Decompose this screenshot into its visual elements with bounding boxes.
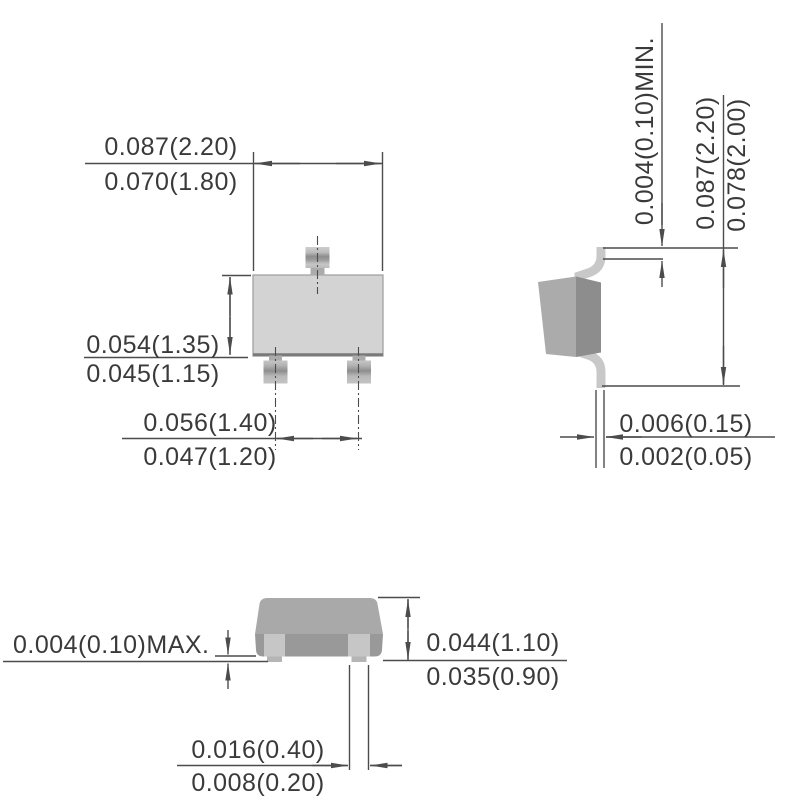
front-view-lead-right-foot <box>352 657 367 663</box>
label-top-lead-pitch-min: 0.047(1.20) <box>124 444 296 470</box>
label-front-lead-width-max: 0.016(0.40) <box>172 737 344 763</box>
label-top-body-height-min: 0.045(1.15) <box>67 361 239 387</box>
side-view-body-left-face <box>538 277 576 358</box>
front-view-lead-right <box>348 634 370 657</box>
front-view-lead-left <box>264 634 285 657</box>
label-side-lead-span-min: 0.078(2.00) <box>724 79 750 251</box>
label-side-lead-span-max: 0.087(2.20) <box>693 77 719 249</box>
label-top-body-width-max: 0.087(2.20) <box>85 134 257 160</box>
package-outline-drawing: 0.087(2.20) 0.070(1.80) 0.054(1.35) 0.04… <box>0 0 800 802</box>
label-front-standoff-max: 0.004(0.10)MAX. <box>13 632 243 658</box>
front-view-body-top <box>255 598 383 634</box>
front-view-lead-left-foot <box>267 657 282 663</box>
label-side-lead-tip-min: 0.004(0.10)MIN. <box>632 21 658 241</box>
side-view-body-right-face <box>576 277 601 358</box>
label-side-lead-thickness-min: 0.002(0.05) <box>600 444 772 470</box>
label-top-lead-pitch-max: 0.056(1.40) <box>124 410 296 436</box>
technical-drawing-canvas <box>0 0 800 802</box>
label-top-body-width-min: 0.070(1.80) <box>85 169 257 195</box>
label-top-body-height-max: 0.054(1.35) <box>67 332 239 358</box>
label-front-height-max: 0.044(1.10) <box>407 630 579 656</box>
label-front-height-min: 0.035(0.90) <box>407 664 579 690</box>
label-front-lead-width-min: 0.008(0.20) <box>172 770 344 796</box>
label-side-lead-thickness-max: 0.006(0.15) <box>600 411 772 437</box>
top-view <box>84 152 383 450</box>
